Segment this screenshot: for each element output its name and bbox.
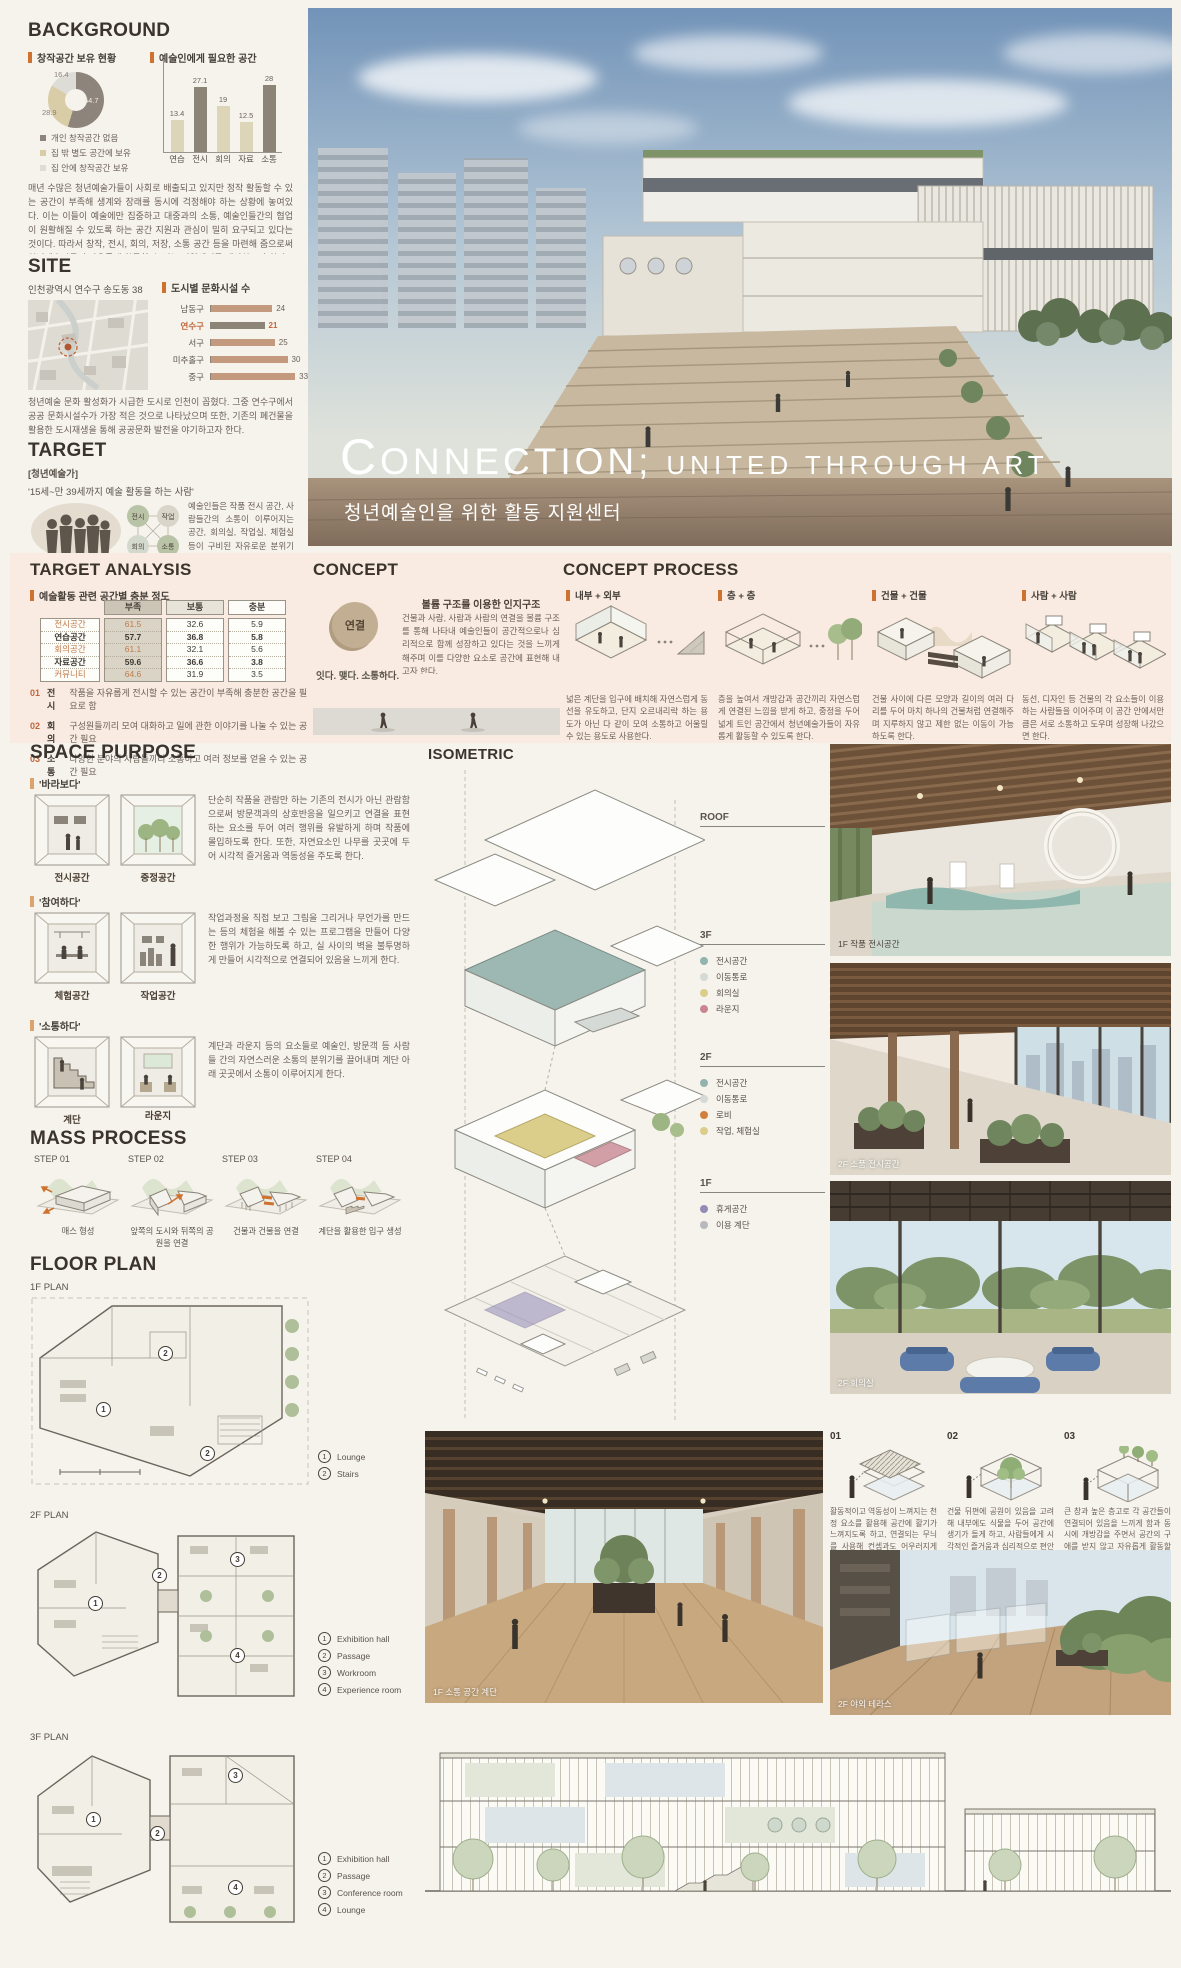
value-cell: 59.6 [105, 657, 161, 670]
bar [217, 106, 230, 152]
photo-conference-room [830, 1181, 1171, 1394]
photo-caption: 2F 회의실 [838, 1377, 874, 1389]
legend-swatch [700, 973, 708, 981]
concept-tagline: 잇다. 맺다. 소통하다. [316, 668, 399, 682]
photo-terrace [830, 1550, 1171, 1715]
accent-bar-icon [566, 590, 570, 601]
value-cell: 32.1 [167, 644, 223, 657]
isometric-floor-group: 1F휴게공간이용 계단 [700, 1178, 825, 1233]
network-node-label: 작업 [162, 512, 175, 521]
legend-label: 이동통로 [716, 971, 747, 983]
bar [194, 87, 207, 152]
concept-heading: CONCEPT [313, 560, 398, 580]
elevation-drawing [425, 1731, 1171, 1911]
step-label: STEP 01 [34, 1154, 70, 1164]
space-purpose-heading: SPACE PURPOSE [30, 742, 196, 764]
divider [700, 944, 825, 945]
bar-group: 28소통 [262, 74, 276, 152]
legend-item: 1Exhibition hall [318, 1630, 401, 1647]
legend-item: 1Lounge [318, 1448, 365, 1465]
mass-process-heading: MASS PROCESS [30, 1128, 187, 1150]
process-item-label: 내부 + 외부 [566, 588, 710, 602]
accent-bar-icon [30, 896, 34, 907]
row-label: 회의공간 [41, 644, 99, 657]
ownership-pie-chart: 54.7 28.9 16.4 [48, 72, 148, 130]
courtyard-room-thumb [120, 794, 196, 866]
plan-1f-drawing [30, 1296, 310, 1486]
concept-process-item: 건물 + 건물 건물 사이에 다른 모양과 길이의 여러 다리를 두어 마치 하… [872, 588, 1016, 743]
plan-marker: 2 [152, 1568, 167, 1583]
photo-caption: 2F 야외 테라스 [838, 1698, 892, 1710]
site-address: 인천광역시 연수구 송도동 38 [28, 282, 143, 296]
legend-item: 휴게공간 [700, 1201, 825, 1217]
ceiling-concept-icon [830, 1446, 937, 1502]
concept-process-heading: CONCEPT PROCESS [563, 560, 738, 580]
floor-label: 3F [700, 930, 825, 941]
space-group-label: '소통하다' [30, 1018, 81, 1033]
bar-category: 전시 [192, 153, 208, 165]
note-number: 01 [30, 688, 40, 698]
plan-marker: 1 [96, 1402, 111, 1417]
legend-number: 1 [318, 1632, 331, 1645]
bar-value: 30 [292, 355, 301, 364]
legend-swatch [40, 150, 46, 156]
photo-communication-space [425, 1431, 823, 1703]
bar-value: 25 [279, 338, 288, 347]
legend-item: 로비 [700, 1107, 825, 1123]
legend-label: 작업, 체험실 [716, 1125, 760, 1137]
site-map [28, 300, 148, 390]
work-room-thumb [120, 912, 196, 984]
needs-chart: 13.4연습27.1전시19회의12.5자료28소통 [163, 60, 282, 153]
plan-legend-0: 1Lounge2Stairs [318, 1448, 365, 1482]
legend-label: 개인 창작공간 없음 [51, 132, 118, 144]
isometric-drawing [425, 770, 705, 1420]
target-people-icon [30, 502, 122, 560]
plan-marker: 1 [86, 1812, 101, 1827]
legend-item: 전시공간 [700, 1075, 825, 1091]
space-group-text: 작업과정을 직접 보고 그림을 그리거나 무언가를 만드는 등의 체험을 해볼 … [208, 912, 410, 988]
legend-item: 2Passage [318, 1647, 401, 1664]
legend-label: 로비 [716, 1109, 732, 1121]
isometric-heading: ISOMETRIC [428, 746, 514, 763]
legend-item: 4Lounge [318, 1901, 403, 1918]
row-label: 커뮤니티 [41, 669, 99, 681]
analysis-notes: 01전시작품을 자유롭게 전시할 수 있는 공간이 부족해 충분한 공간을 필요… [30, 686, 315, 785]
bar-value: 21 [269, 321, 278, 330]
plan-marker: 4 [230, 1648, 245, 1663]
network-node-label: 회의 [132, 542, 145, 551]
value-cell: 61.5 [105, 619, 161, 632]
open-space-icon [1064, 1446, 1171, 1502]
facilities-chart: 남동구24연수구21서구25미추홀구30중구33 [158, 300, 308, 385]
concept-process-item: 내부 + 외부 넓은 계단을 입구에 배치해 자연스럽게 동선을 유도하고, 단… [566, 588, 710, 743]
accent-bar-icon [30, 1020, 34, 1031]
legend-swatch [40, 135, 46, 141]
row-label: 전시공간 [41, 619, 99, 632]
floor-label: ROOF [700, 812, 825, 823]
space-group-label: '참여하다' [30, 894, 81, 909]
legend-item: 3Workroom [318, 1664, 401, 1681]
legend-number: 4 [318, 1683, 331, 1696]
room-label: 계단 [34, 1112, 110, 1126]
value-cell: 5.8 [229, 632, 285, 645]
accent-bar-icon [150, 52, 154, 63]
concept-process-item: 층 + 층 층을 높여서 개방감과 공간끼리 자연스럽게 연결된 느낌을 받게 … [718, 588, 862, 743]
bar-label: 서구 [158, 337, 210, 349]
plan-marker: 2 [150, 1826, 165, 1841]
value-cell: 64.6 [105, 669, 161, 681]
plan-label: 2F PLAN [30, 1510, 69, 1521]
plan-legend-2: 1Exhibition hall2Passage3Conference room… [318, 1850, 403, 1918]
room-label: 중정공간 [120, 870, 196, 884]
bar-row: 서구25 [158, 334, 308, 351]
background-heading: BACKGROUND [28, 20, 170, 42]
step-caption: 계단을 활용한 입구 생성 [316, 1226, 404, 1238]
pie-legend-item: 개인 창작공간 없음 [40, 130, 131, 145]
legend-label: 전시공간 [716, 1077, 747, 1089]
process-item-text: 층을 높여서 개방감과 공간끼리 자연스럽게 연결된 느낌을 받게 하고, 중정… [718, 693, 860, 743]
legend-label: Stairs [337, 1469, 359, 1479]
mass-step1-icon [34, 1166, 122, 1220]
legend-label: 전시공간 [716, 955, 747, 967]
pie-value: 16.4 [54, 70, 69, 79]
legend-number: 2 [318, 1649, 331, 1662]
mass-step3-icon [222, 1166, 310, 1220]
analysis-heading: TARGET ANALYSIS [30, 560, 192, 580]
legend-swatch [700, 989, 708, 997]
legend-item: 회의실 [700, 985, 825, 1001]
presentation-board: BACKGROUND 창작공간 보유 현황 예술인에게 필요한 공간 54.7 … [0, 0, 1181, 1968]
pie-legend: 개인 창작공간 없음집 밖 별도 공간에 보유집 안에 창작공간 보유 [40, 130, 131, 175]
target-group: [청년예술가] [28, 466, 78, 480]
bar-row: 중구33 [158, 368, 308, 385]
concept-subheading: 볼륨 구조를 이용한 인지구조 [402, 596, 560, 611]
step-caption: 건물과 건물을 연결 [222, 1226, 310, 1238]
legend-number: 2 [318, 1869, 331, 1882]
legend-item: 이용 계단 [700, 1217, 825, 1233]
photo-exhibition-hall [830, 744, 1171, 956]
value-cell: 32.6 [167, 619, 223, 632]
plan-marker: 2 [158, 1346, 173, 1361]
legend-label: 라운지 [716, 1003, 739, 1015]
floor-floor-icon [718, 602, 862, 688]
legend-number: 3 [318, 1666, 331, 1679]
accent-bar-icon [872, 590, 876, 601]
accent-bar-icon [30, 590, 34, 601]
legend-item: 4Experience room [318, 1681, 401, 1698]
target-network-diagram: 전시 작업 회의 소통 [124, 502, 182, 560]
plan-marker: 4 [228, 1880, 243, 1895]
legend-label: Exhibition hall [337, 1634, 389, 1644]
step-label: STEP 03 [222, 1154, 258, 1164]
plan-label: 1F PLAN [30, 1282, 69, 1293]
legend-swatch [700, 1005, 708, 1013]
legend-swatch [700, 1111, 708, 1119]
plan-marker: 1 [88, 1596, 103, 1611]
mass-step2-icon [128, 1166, 216, 1220]
photo-caption: 2F 소품 전시공간 [838, 1158, 900, 1170]
value-cell: 36.6 [167, 657, 223, 670]
bar [210, 339, 275, 346]
legend-label: Lounge [337, 1905, 365, 1915]
legend-number: 4 [318, 1903, 331, 1916]
bar-value: 33 [299, 372, 308, 381]
value-cell: 3.8 [229, 657, 285, 670]
bar-row: 남동구24 [158, 300, 308, 317]
bar-category: 연습 [169, 153, 185, 165]
target-heading: TARGET [28, 440, 107, 462]
insight-number: 03 [1064, 1431, 1075, 1442]
analysis-col-header: 부족 [104, 600, 162, 615]
insight-number: 02 [947, 1431, 958, 1442]
facilities-chart-label: 도시별 문화시설 수 [162, 280, 250, 295]
legend-number: 1 [318, 1852, 331, 1865]
interior-exterior-icon [566, 602, 710, 688]
legend-item: 이동통로 [700, 1091, 825, 1107]
floor-label: 1F [700, 1178, 825, 1189]
analysis-col1: 32.636.832.136.631.9 [166, 618, 224, 682]
space-group-text: 계단과 라운지 등의 요소들로 예술인, 방문객 등 사람들 간의 자연스러운 … [208, 1040, 410, 1104]
concept-paragraph: 건물과 사람, 사람과 사람의 연결을 볼륨 구조를 통해 나타내 예술인들이 … [402, 612, 560, 674]
legend-swatch [700, 1221, 708, 1229]
target-definition: '15세~만 39세까지 예술 활동을 하는 사람' [28, 484, 194, 498]
bar [240, 122, 253, 152]
isometric-floor-group: ROOF [700, 812, 825, 930]
legend-swatch [700, 1205, 708, 1213]
concept-walk-strip [313, 708, 560, 735]
legend-swatch [40, 165, 46, 171]
bar-label: 연수구 [158, 320, 210, 332]
legend-item: 라운지 [700, 1001, 825, 1017]
photo-caption: 1F 작품 전시공간 [838, 938, 900, 950]
note-number: 02 [30, 721, 40, 731]
legend-label: Workroom [337, 1668, 376, 1678]
bar-category: 회의 [215, 153, 231, 165]
bar [210, 373, 295, 380]
row-label: 연습공간 [41, 632, 99, 645]
legend-label: Passage [337, 1871, 370, 1881]
room-label: 라운지 [120, 1108, 196, 1122]
floor-plan-heading: FLOOR PLAN [30, 1254, 157, 1276]
legend-label: Experience room [337, 1685, 401, 1695]
accent-bar-icon [718, 590, 722, 601]
value-cell: 5.6 [229, 644, 285, 657]
legend-swatch [700, 957, 708, 965]
value-cell: 61.1 [105, 644, 161, 657]
network-node-label: 전시 [132, 512, 145, 521]
legend-label: Lounge [337, 1452, 365, 1462]
plan-legend-1: 1Exhibition hall2Passage3Workroom4Experi… [318, 1630, 401, 1698]
process-item-label: 건물 + 건물 [872, 588, 1016, 602]
bar [210, 356, 288, 363]
plan-3f-drawing [30, 1746, 310, 1938]
isometric-floor-group: 3F전시공간이동통로회의실라운지 [700, 930, 825, 1052]
note-text: 작품을 자유롭게 전시할 수 있는 공간이 부족해 충분한 공간을 필요로 함 [69, 686, 315, 712]
plan-2f-drawing [30, 1524, 310, 1712]
legend-item: 2Stairs [318, 1465, 365, 1482]
value-cell: 57.7 [105, 632, 161, 645]
plan-marker: 2 [200, 1446, 215, 1461]
accent-bar-icon [30, 778, 34, 789]
bar [171, 120, 184, 152]
legend-label: Passage [337, 1651, 370, 1661]
bar-row: 미추홀구30 [158, 351, 308, 368]
walking-people-icon [313, 708, 560, 735]
plan-marker: 3 [228, 1768, 243, 1783]
room-label: 전시공간 [34, 870, 110, 884]
plan-marker: 3 [230, 1552, 245, 1567]
legend-swatch [700, 1079, 708, 1087]
legend-number: 2 [318, 1467, 331, 1480]
divider [700, 826, 825, 827]
step-label: STEP 04 [316, 1154, 352, 1164]
bar-group: 27.1전시 [193, 76, 207, 152]
bar-category: 자료 [238, 153, 254, 165]
process-item-label: 사람 + 사람 [1022, 588, 1166, 602]
note-tag: 전시 [47, 686, 62, 712]
experience-room-thumb [34, 912, 110, 984]
space-group-label: '바라보다' [30, 776, 81, 791]
accent-bar-icon [162, 282, 166, 293]
bar [210, 305, 272, 312]
analysis-col0: 61.557.761.159.664.6 [104, 618, 162, 682]
legend-item: 작업, 체험실 [700, 1123, 825, 1139]
floor-label: 2F [700, 1052, 825, 1063]
bar [210, 322, 265, 329]
insight-number: 01 [830, 1431, 841, 1442]
legend-label: Exhibition hall [337, 1854, 389, 1864]
analysis-note: 01전시작품을 자유롭게 전시할 수 있는 공간이 부족해 충분한 공간을 필요… [30, 686, 315, 712]
value-cell: 3.5 [229, 669, 285, 681]
building-building-icon [872, 602, 1016, 688]
lounge-thumb [120, 1036, 196, 1108]
analysis-row-labels: 전시공간연습공간회의공간자료공간커뮤니티 [40, 618, 100, 682]
process-item-text: 건물 사이에 다른 모양과 길이의 여러 다리를 두어 마치 하나의 건물처럼 … [872, 693, 1014, 743]
step-label: STEP 02 [128, 1154, 164, 1164]
site-paragraph: 청년예술 문화 활성화가 시급한 도시로 인천이 꼽혔다. 그중 연수구에서 공… [28, 396, 293, 440]
bar-category: 소통 [261, 153, 277, 165]
space-group-text: 단순히 작품을 관람만 하는 기존의 전시가 아닌 관람함으로써 방문객과의 상… [208, 794, 410, 870]
legend-label: 회의실 [716, 987, 739, 999]
legend-item: 1Exhibition hall [318, 1850, 403, 1867]
pie-chart-label: 창작공간 보유 현황 [28, 50, 116, 65]
exhibition-room-thumb [34, 794, 110, 866]
pie-value: 54.7 [84, 96, 99, 105]
value-cell: 31.9 [167, 669, 223, 681]
bar-value: 27.1 [193, 76, 208, 85]
bar-label: 미추홀구 [158, 354, 210, 366]
bar-group: 13.4연습 [170, 109, 184, 152]
legend-label: 이동통로 [716, 1093, 747, 1105]
room-label: 체험공간 [34, 988, 110, 1002]
concept-process-item: 사람 + 사람 동선, 디자인 등 건물의 각 요소들이 이용하는 사람들을 이… [1022, 588, 1166, 743]
legend-number: 3 [318, 1886, 331, 1899]
photo-lobby [830, 963, 1171, 1175]
person-person-icon [1022, 602, 1166, 688]
stairs-thumb [34, 1036, 110, 1108]
legend-label: 이용 계단 [716, 1219, 750, 1231]
site-heading: SITE [28, 256, 71, 278]
bar-label: 중구 [158, 371, 210, 383]
analysis-col2: 5.95.85.63.83.5 [228, 618, 286, 682]
legend-item: 전시공간 [700, 953, 825, 969]
row-label: 자료공간 [41, 657, 99, 670]
process-item-text: 동선, 디자인 등 건물의 각 요소들이 이용하는 사람들을 이어주며 이 공간… [1022, 693, 1164, 743]
bar-value: 28 [265, 74, 273, 83]
isometric-legend: ROOF3F전시공간이동통로회의실라운지2F전시공간이동통로로비작업, 체험실1… [700, 812, 825, 1233]
concept-keyword: 연결 [332, 602, 378, 648]
legend-item: 3Conference room [318, 1884, 403, 1901]
bar-value: 24 [276, 304, 285, 313]
analysis-col-header: 충분 [228, 600, 286, 615]
legend-item: 2Passage [318, 1867, 403, 1884]
bar-group: 19회의 [216, 95, 230, 152]
accent-bar-icon [28, 52, 32, 63]
legend-number: 1 [318, 1450, 331, 1463]
pie-legend-item: 집 안에 창작공간 보유 [40, 160, 131, 175]
pie-value: 28.9 [42, 108, 57, 117]
legend-item: 이동통로 [700, 969, 825, 985]
network-node-label: 소통 [162, 543, 175, 551]
divider [700, 1192, 825, 1193]
legend-label: 휴게공간 [716, 1203, 747, 1215]
process-item-text: 넓은 계단을 입구에 배치해 자연스럽게 동선을 유도하고, 단지 오르내리락 … [566, 693, 708, 743]
pie-legend-item: 집 밖 별도 공간에 보유 [40, 145, 131, 160]
bar [263, 85, 276, 152]
accent-bar-icon [1022, 590, 1026, 601]
bar-value: 13.4 [170, 109, 185, 118]
bar-row: 연수구21 [158, 317, 308, 334]
mass-step4-icon [316, 1166, 404, 1220]
bar-label: 남동구 [158, 303, 210, 315]
plan-label: 3F PLAN [30, 1732, 69, 1743]
analysis-col-header: 보통 [166, 600, 224, 615]
legend-label: 집 안에 창작공간 보유 [51, 162, 128, 174]
indoor-plants-icon [947, 1446, 1054, 1502]
background-paragraph: 매년 수많은 청년예술가들이 사회로 배출되고 있지만 정작 활동할 수 있는 … [28, 182, 293, 254]
legend-swatch [700, 1095, 708, 1103]
divider [700, 1066, 825, 1067]
process-item-label: 층 + 층 [718, 588, 862, 602]
bar-group: 12.5자료 [239, 111, 253, 152]
isometric-floor-group: 2F전시공간이동통로로비작업, 체험실 [700, 1052, 825, 1178]
step-caption: 매스 형성 [34, 1226, 122, 1238]
step-caption: 앞쪽의 도시와 뒤쪽의 공원을 연결 [128, 1226, 216, 1249]
value-cell: 36.8 [167, 632, 223, 645]
room-label: 작업공간 [120, 988, 196, 1002]
photo-caption: 1F 소통 공간 계단 [433, 1686, 497, 1698]
hero-subtitle: 청년예술인을 위한 활동 지원센터 [344, 498, 622, 525]
legend-swatch [700, 1127, 708, 1135]
value-cell: 5.9 [229, 619, 285, 632]
bar-value: 19 [219, 95, 227, 104]
bar-value: 12.5 [239, 111, 254, 120]
legend-label: Conference room [337, 1888, 403, 1898]
hero-title: CONNECTION;UNITED THROUGH ART [340, 428, 1049, 486]
legend-label: 집 밖 별도 공간에 보유 [51, 147, 131, 159]
